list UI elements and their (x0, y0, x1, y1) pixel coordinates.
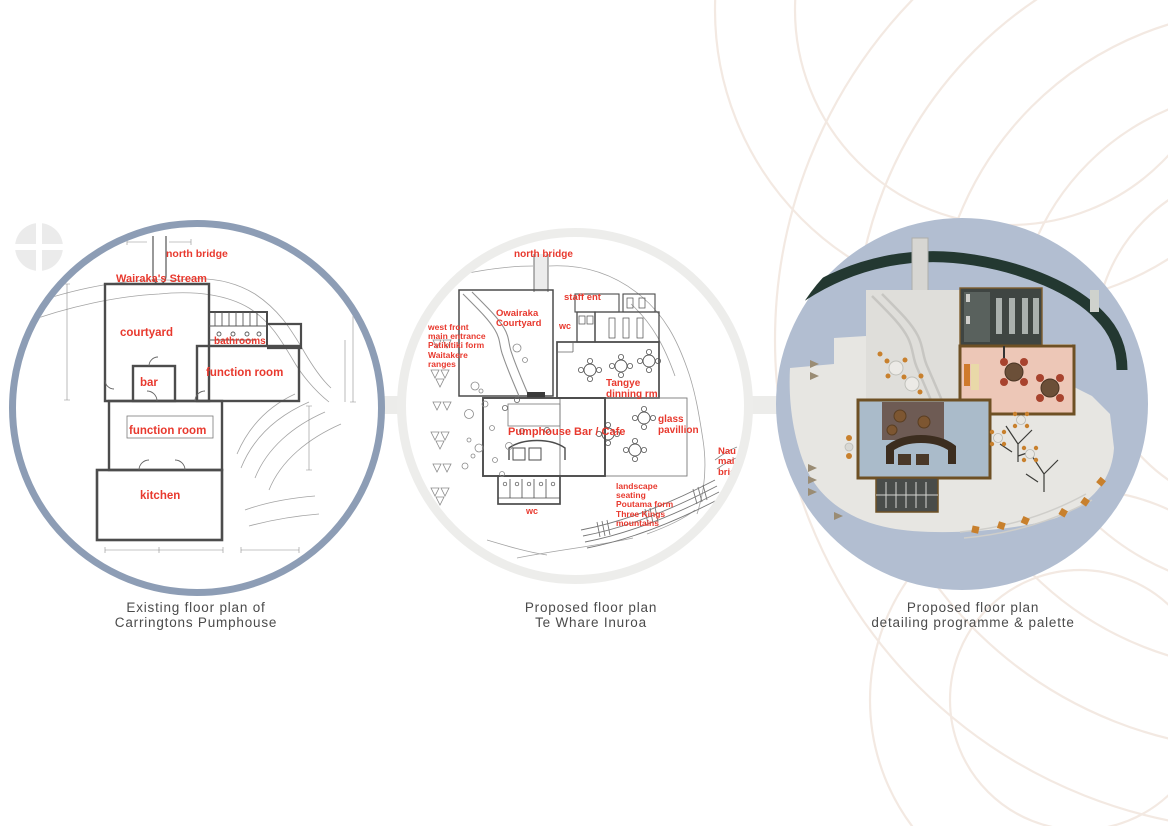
label-wairakas-stream: Wairaka's Stream (116, 274, 207, 286)
label-kitchen: kitchen (140, 490, 180, 502)
contour-lines (19, 279, 341, 526)
caption-proposed: Proposed floor plan Te Whare Inuroa (441, 600, 741, 630)
paving-seating-left (845, 435, 853, 459)
label-north-bridge: north bridge (514, 250, 573, 261)
wc-block-plan (498, 476, 560, 504)
service-block-render (960, 288, 1042, 346)
proposed-plan-circle: north bridge west front main entrance Pa… (397, 228, 753, 584)
label-pumphouse-bar: Pumphouse Bar / Cafe (508, 427, 625, 439)
label-landscape-seating: landscape seating Poutama form Three Kin… (616, 482, 673, 528)
kitchen-walls (97, 470, 222, 540)
proposed-plan-drawing (397, 228, 753, 584)
room-walls (97, 284, 301, 540)
label-function-room-upper: function room (206, 367, 283, 379)
label-courtyard: courtyard (120, 327, 173, 339)
wc-block-render (876, 478, 938, 512)
caption-render: Proposed floor plan detailing programme … (823, 600, 1123, 630)
north-bridge-render (912, 238, 928, 292)
label-nau-mai-bridge: Nau mai bridge (718, 447, 747, 478)
label-owairaka-courtyard: Owairaka Courtyard (496, 309, 541, 330)
label-staff-ent: staff ent (564, 293, 601, 303)
caption-existing: Existing floor plan of Carringtons Pumph… (46, 600, 346, 630)
caption-render-line1: Proposed floor plan (823, 600, 1123, 615)
label-west-front: west front main entrance Patikitiki form… (428, 323, 486, 369)
label-wc-lower: wc (526, 507, 538, 517)
render-plan-circle (774, 216, 1150, 592)
label-bathrooms: bathrooms (214, 337, 266, 348)
door-arcs (105, 357, 205, 470)
presentation-board: north bridge Wairaka's Stream courtyard … (0, 0, 1168, 826)
render-plan-image (774, 216, 1150, 592)
existing-plan-circle: north bridge Wairaka's Stream courtyard … (9, 220, 385, 596)
caption-render-line2: detailing programme & palette (823, 615, 1123, 630)
caption-existing-line1: Existing floor plan of (46, 600, 346, 615)
small-pier (1090, 290, 1099, 312)
caption-proposed-line2: Te Whare Inuroa (441, 615, 741, 630)
caption-existing-line2: Carringtons Pumphouse (46, 615, 346, 630)
label-tangye-dining: Tangye dinning rm (606, 379, 658, 401)
label-bar: bar (140, 377, 158, 389)
label-glass-pavillion: glass pavillion (658, 415, 699, 437)
caption-proposed-line1: Proposed floor plan (441, 600, 741, 615)
annex-walls (267, 324, 301, 348)
bar-room-render (858, 400, 990, 478)
label-wc-upper: wc (559, 322, 571, 332)
label-north-bridge: north bridge (166, 249, 228, 260)
label-function-room-lower: function room (129, 425, 206, 437)
